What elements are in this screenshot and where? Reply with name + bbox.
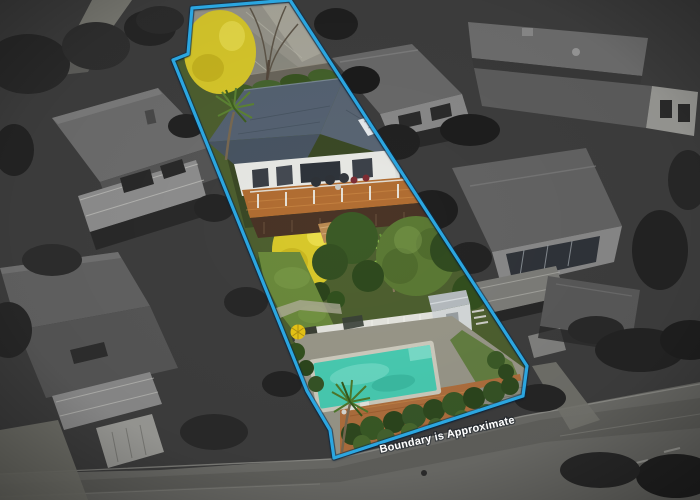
- aerial-scene: Boundary is Approximate: [0, 0, 700, 500]
- aerial-property-photo: Boundary is Approximate: [0, 0, 700, 500]
- vignette-overlay: [0, 0, 700, 500]
